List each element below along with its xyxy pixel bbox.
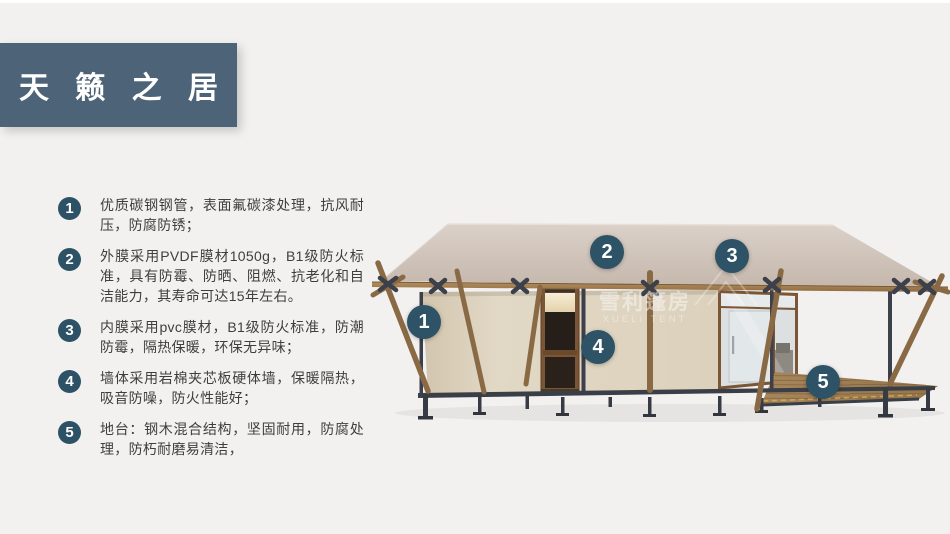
feature-number-badge-1: 1 (58, 197, 81, 220)
marker-number-4: 4 (592, 336, 603, 359)
feature-text-3: 内膜采用pvc膜材，B1级防火标准，防潮防霉，隔热保暖，环保无异味； (100, 317, 364, 357)
diagram-marker-5: 5 (806, 365, 840, 399)
marker-number-5: 5 (817, 371, 828, 394)
feature-item-3: 3 内膜采用pvc膜材，B1级防火标准，防潮防霉，隔热保暖，环保无异味； (58, 317, 370, 357)
feature-item-4: 4 墙体采用岩棉夹芯板硬体墙，保暖隔热，吸音防噪，防火性能好； (58, 368, 370, 408)
feature-number-badge-2: 2 (58, 248, 81, 271)
feature-text-1: 优质碳钢钢管，表面氟碳漆处理，抗风耐压，防腐防锈； (100, 195, 364, 235)
diagram-marker-1: 1 (407, 305, 441, 339)
marker-number-3: 3 (726, 245, 737, 268)
marker-number-1: 1 (418, 311, 429, 334)
feature-item-5: 5 地台：钢木混合结构，坚固耐用，防腐处理，防朽耐磨易清洁， (58, 419, 370, 459)
marker-number-2: 2 (601, 241, 612, 264)
feature-item-1: 1 优质碳钢钢管，表面氟碳漆处理，抗风耐压，防腐防锈； (58, 195, 370, 235)
tent-diagram: 雪利篷房 XUELI TENT 1 2 3 4 5 (370, 198, 950, 434)
feature-text-2: 外膜采用PVDF膜材1050g，B1级防火标准，具有防霉、防晒、阻燃、抗老化和自… (100, 246, 364, 306)
feature-item-2: 2 外膜采用PVDF膜材1050g，B1级防火标准，具有防霉、防晒、阻燃、抗老化… (58, 246, 370, 306)
title-banner: 天 籁 之 居 (0, 43, 237, 127)
diagram-marker-2: 2 (590, 235, 624, 269)
diagram-marker-4: 4 (581, 330, 615, 364)
tent-door (541, 287, 579, 392)
page-title: 天 籁 之 居 (10, 63, 227, 107)
feature-text-5: 地台：钢木混合结构，坚固耐用，防腐处理，防朽耐磨易清洁， (100, 419, 364, 459)
watermark-cn: 雪利篷房 (599, 290, 691, 314)
feature-list: 1 优质碳钢钢管，表面氟碳漆处理，抗风耐压，防腐防锈； 2 外膜采用PVDF膜材… (58, 195, 370, 470)
canopy-roof (381, 224, 940, 287)
diagram-marker-3: 3 (715, 239, 749, 273)
watermark-en: XUELI TENT (603, 314, 688, 325)
top-border-strip (0, 0, 950, 3)
feature-number-badge-5: 5 (58, 421, 81, 444)
feature-text-4: 墙体采用岩棉夹芯板硬体墙，保暖隔热，吸音防噪，防火性能好； (100, 368, 364, 408)
feature-number-badge-4: 4 (58, 370, 81, 393)
feature-number-badge-3: 3 (58, 319, 81, 342)
tent-illustration: 雪利篷房 XUELI TENT (370, 198, 950, 434)
